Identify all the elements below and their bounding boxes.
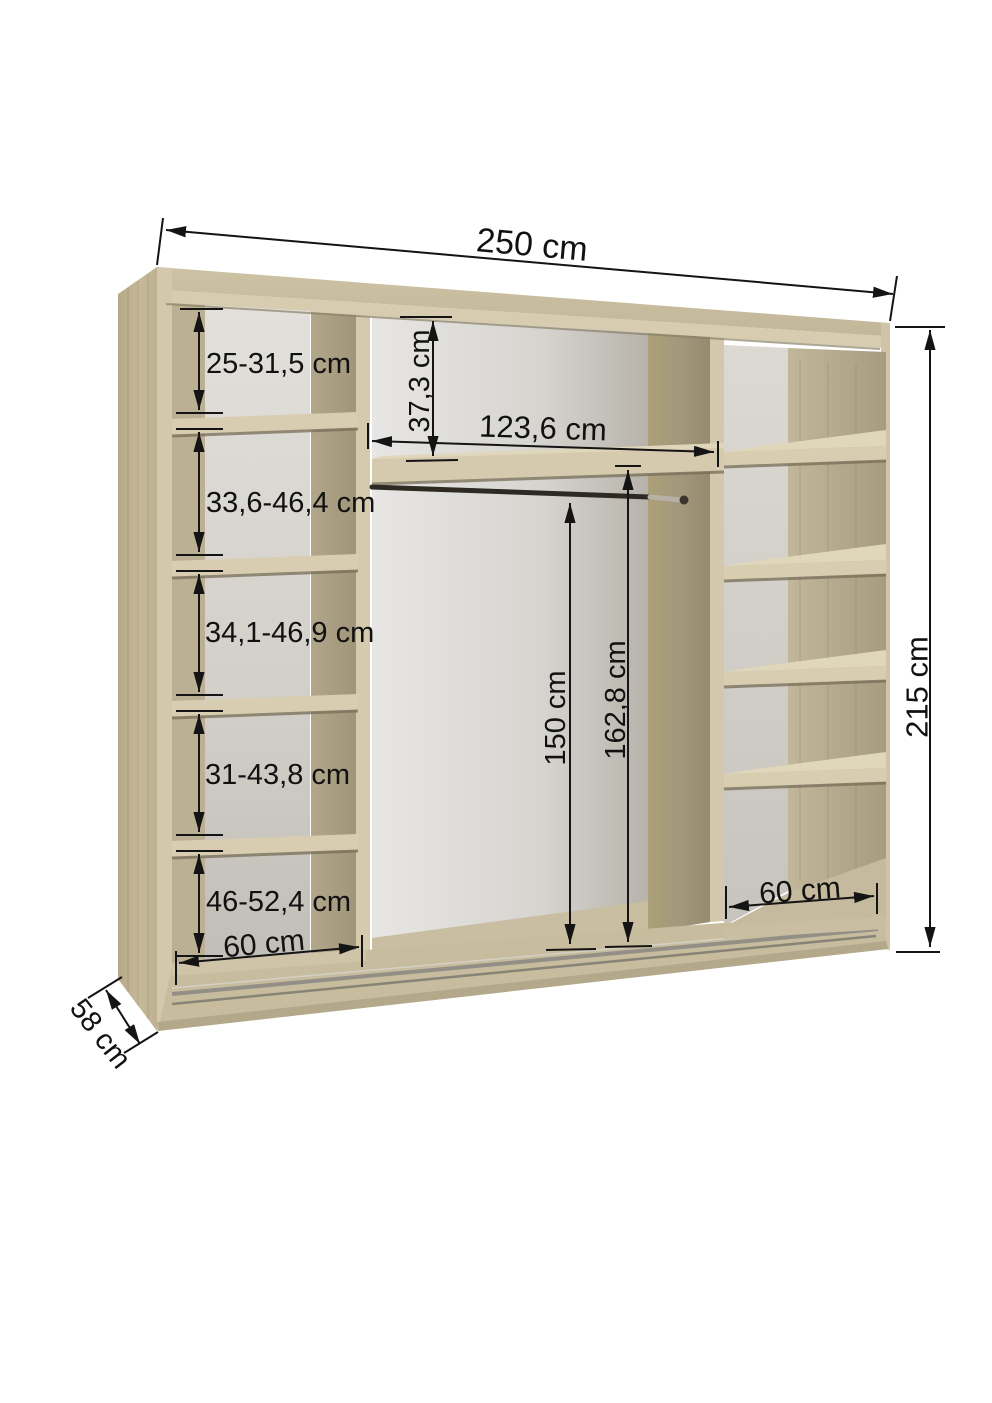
dim-label-left-shelf-2: 33,6-46,4 cm [206,487,375,519]
dim-label-top-shelf-drop: 37,3 cm [404,329,436,432]
dim-label-total-width: 250 cm [475,221,589,269]
dim-label-middle-width: 123,6 cm [479,409,608,448]
dim-label-left-shelf-1: 25-31,5 cm [206,348,351,380]
left-front-edge [157,267,172,1031]
dim-label-middle-height: 162,8 cm [600,640,632,759]
dim-label-left-shelf-3: 34,1-46,9 cm [205,617,374,649]
dim-label-depth: 58 cm [63,993,137,1075]
right-back-panel [724,345,788,926]
dim-label-left-shelf-4: 31-43,8 cm [205,759,350,791]
left-inner-face [172,303,205,966]
dim-label-rail-height: 150 cm [540,670,572,765]
dim-label-total-height: 215 cm [900,636,935,738]
hanging-rail-end [650,497,682,500]
divider2-side-face [648,333,710,932]
diagram-svg: 250 cm 25-31,5 cm 33,6-46,4 cm 34,1-46,9… [0,0,992,1403]
divider2-front-edge [710,336,724,922]
dim-label-left-shelf-5: 46-52,4 cm [206,886,351,918]
rail-bracket-icon [680,496,689,505]
wardrobe-dimension-diagram: 250 cm 25-31,5 cm 33,6-46,4 cm 34,1-46,9… [0,0,992,1403]
dim-label-right-width: 60 cm [758,871,842,910]
